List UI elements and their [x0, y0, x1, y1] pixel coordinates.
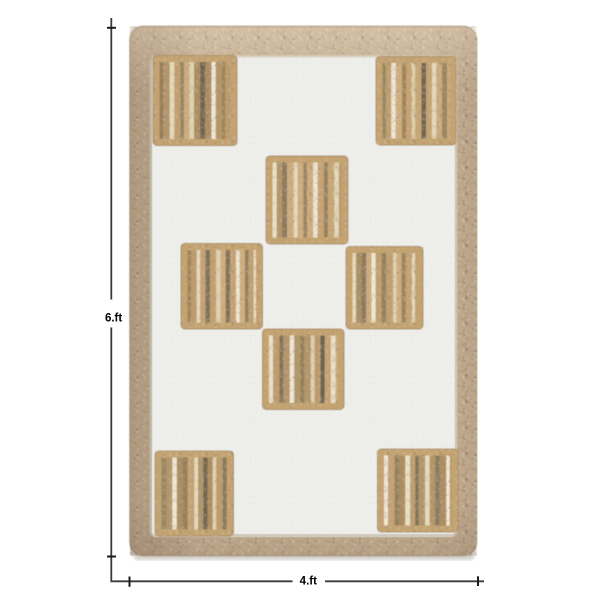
- svg-text:4.ft: 4.ft: [300, 576, 317, 588]
- svg-text:6.ft: 6.ft: [105, 313, 122, 325]
